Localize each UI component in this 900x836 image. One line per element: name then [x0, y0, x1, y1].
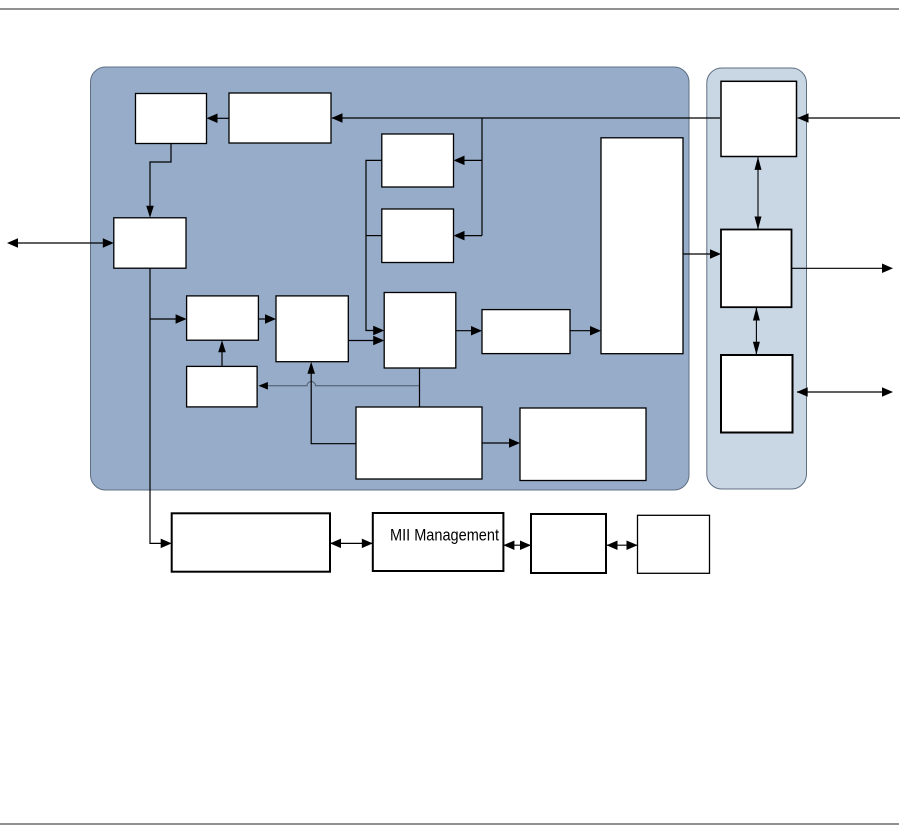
svg-text:MII Management: MII Management — [390, 526, 499, 545]
